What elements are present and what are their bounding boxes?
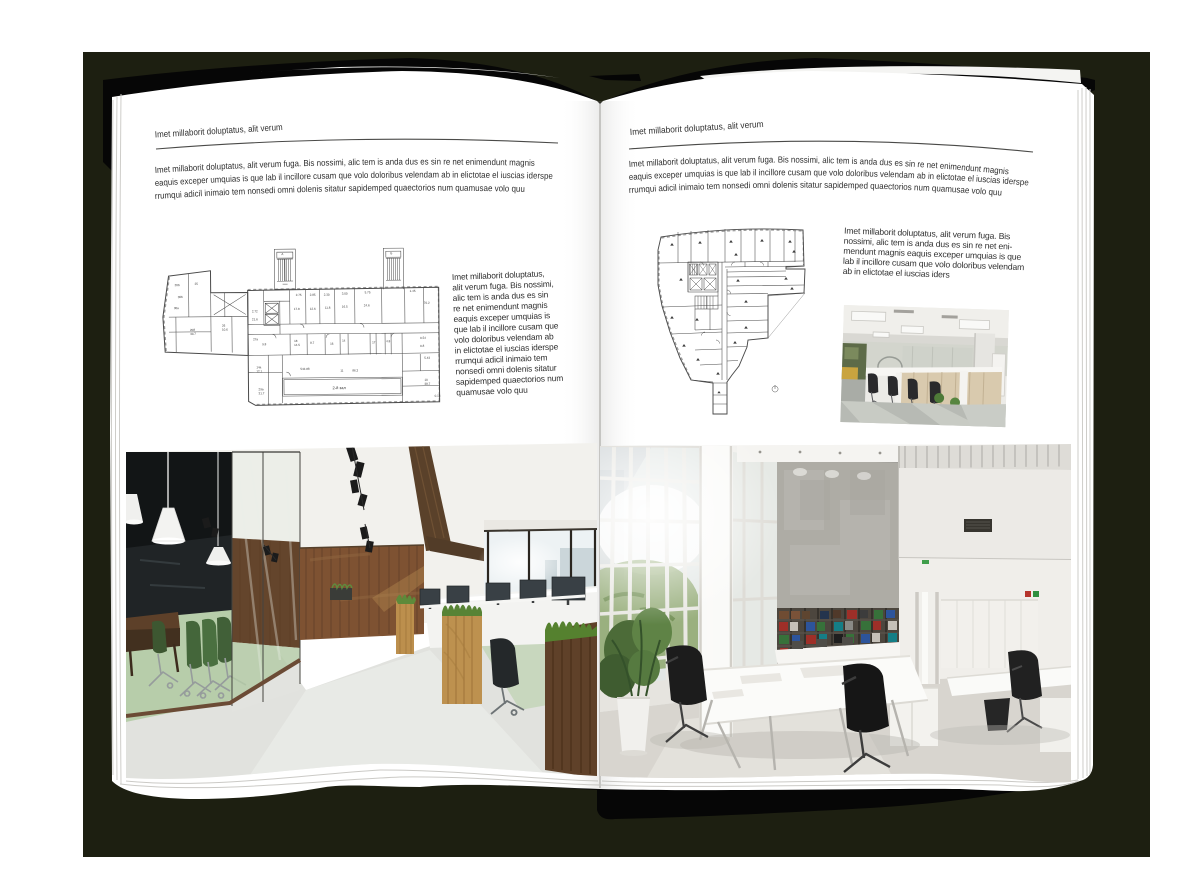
svg-text:17.8: 17.8 — [294, 307, 300, 311]
svg-text:206: 206 — [175, 283, 180, 287]
svg-text:30a: 30a — [174, 306, 179, 310]
svg-text:25: 25 — [195, 282, 199, 286]
svg-text:16.5: 16.5 — [342, 305, 348, 309]
svg-text:0.18: 0.18 — [435, 394, 441, 398]
svg-text:9.8: 9.8 — [262, 342, 267, 346]
svg-text:A: A — [281, 252, 283, 256]
svg-text:3.00: 3.00 — [342, 292, 348, 296]
svg-text:5.43: 5.43 — [424, 356, 430, 360]
svg-text:14: 14 — [342, 339, 346, 343]
svg-text:2-й зал: 2-й зал — [332, 385, 346, 390]
svg-text:2.85: 2.85 — [310, 293, 316, 297]
svg-text:8.7: 8.7 — [310, 341, 315, 345]
svg-text:Б: Б — [390, 251, 392, 255]
svg-text:14.5: 14.5 — [294, 343, 300, 347]
svg-text:40.7: 40.7 — [190, 332, 196, 336]
svg-text:27a: 27a — [253, 337, 258, 341]
svg-text:1.45: 1.45 — [410, 289, 416, 293]
svg-text:38.7: 38.7 — [424, 382, 430, 386]
svg-text:2.75: 2.75 — [296, 293, 302, 297]
svg-text:12.1: 12.1 — [256, 369, 262, 373]
svg-text:17: 17 — [372, 340, 376, 344]
svg-text:2.30: 2.30 — [324, 293, 330, 297]
svg-text:16: 16 — [330, 342, 334, 346]
svg-text:86.3: 86.3 — [352, 368, 358, 372]
svg-text:70.2: 70.2 — [424, 301, 430, 305]
svg-text:11: 11 — [340, 369, 343, 373]
svg-text:21.6: 21.6 — [252, 317, 258, 321]
svg-text:4.8: 4.8 — [386, 339, 391, 343]
svg-text:31.7: 31.7 — [259, 391, 265, 395]
svg-text:0.54: 0.54 — [420, 336, 426, 340]
svg-text:5.75: 5.75 — [365, 290, 371, 294]
svg-text:11.8: 11.8 — [325, 306, 331, 310]
svg-text:24.6: 24.6 — [364, 303, 370, 307]
svg-text:2.72: 2.72 — [252, 309, 258, 313]
svg-text:306: 306 — [178, 295, 183, 299]
svg-text:542.88: 542.88 — [300, 367, 310, 371]
svg-text:0.8: 0.8 — [420, 344, 425, 348]
svg-text:12.6: 12.6 — [310, 307, 316, 311]
svg-text:10.6: 10.6 — [222, 328, 228, 332]
